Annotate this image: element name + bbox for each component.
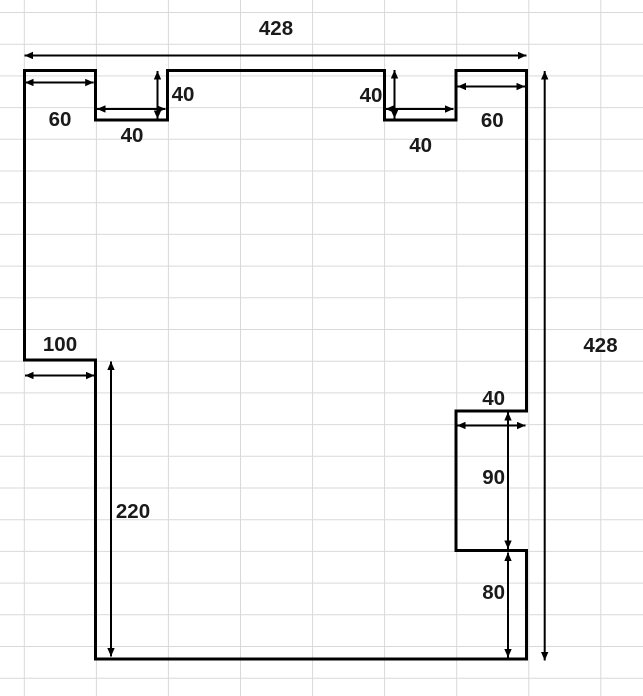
svg-text:40: 40 [360, 84, 383, 107]
svg-text:60: 60 [49, 108, 72, 131]
svg-text:40: 40 [172, 83, 195, 106]
svg-text:40: 40 [121, 124, 144, 147]
svg-text:100: 100 [43, 333, 77, 356]
svg-text:428: 428 [583, 334, 617, 357]
svg-text:40: 40 [409, 134, 432, 157]
svg-text:220: 220 [116, 500, 150, 523]
svg-text:90: 90 [482, 466, 505, 489]
svg-text:80: 80 [482, 581, 505, 604]
svg-text:428: 428 [259, 17, 293, 40]
svg-text:60: 60 [481, 109, 504, 132]
svg-text:40: 40 [482, 387, 505, 410]
